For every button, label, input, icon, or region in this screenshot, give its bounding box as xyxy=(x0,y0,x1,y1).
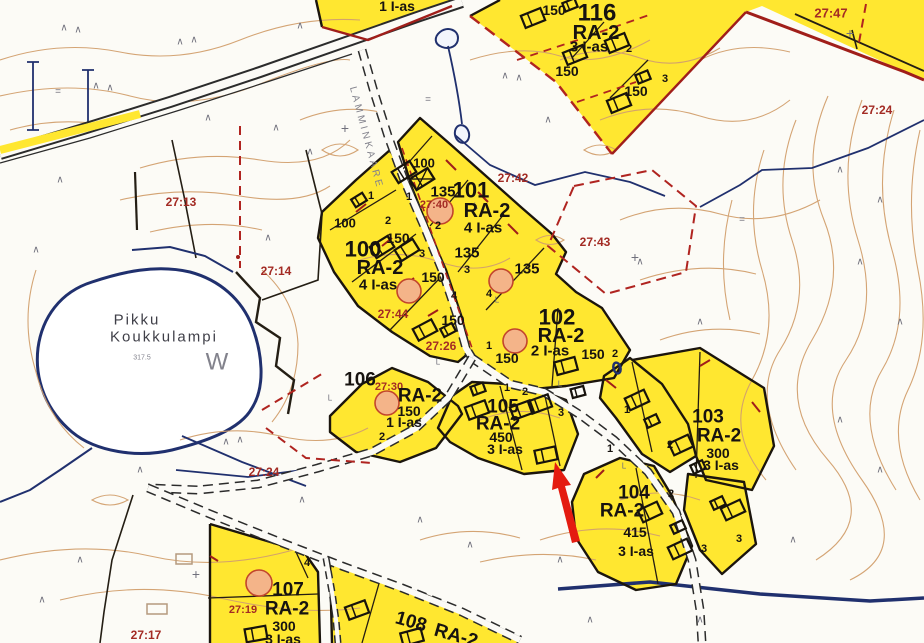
tree-icon: ∧ xyxy=(876,195,883,206)
lake-name-line1: Pikku xyxy=(114,312,161,329)
spot-icon: L xyxy=(495,296,500,305)
area-label: 150 xyxy=(386,230,410,246)
parcel-dwellings: 1 I-as xyxy=(379,0,415,14)
parcel-101-dwellings: 4 I-as xyxy=(464,220,502,237)
parcel-105-dwellings: 3 I-as xyxy=(487,441,523,457)
marsh-icon: = xyxy=(55,87,61,98)
tree-icon: ∧ xyxy=(856,257,863,268)
cadastral-ref: 27:24 xyxy=(249,465,280,479)
parcel-103-dwellings: 3 I-as xyxy=(703,457,739,473)
tree-icon: ∧ xyxy=(515,73,522,84)
marsh-icon: = xyxy=(739,215,745,226)
lot-number: 3 xyxy=(558,407,564,419)
spot-icon: L xyxy=(328,394,333,403)
cadastral-ref: 27:17 xyxy=(131,628,162,642)
building-circle-icon xyxy=(397,279,421,303)
cross-icon: + xyxy=(846,25,854,41)
parcel-104-dwellings: 3 I-as xyxy=(618,543,654,559)
tree-icon: ∧ xyxy=(92,81,99,92)
area-label: 150 xyxy=(555,63,579,79)
area-label: 150 xyxy=(542,2,566,18)
tree-icon: ∧ xyxy=(586,615,593,626)
parcel-101-number: 101 xyxy=(453,178,490,203)
tree-icon: ∧ xyxy=(789,535,796,546)
spot-icon: L xyxy=(436,358,441,367)
zoning-map: ∧∧∧∧∧∧∧∧∧∧∧∧∧∧∧∧∧∧∧∧∧∧∧∧∧∧∧∧∧∧∧∧∧∧∧∧++++… xyxy=(0,0,924,643)
cadastral-ref: 27:47 xyxy=(814,6,847,21)
tree-icon: ∧ xyxy=(298,495,305,506)
tree-icon: ∧ xyxy=(106,83,113,94)
lot-number: 4 xyxy=(451,290,458,302)
parcel-100-number: 100 xyxy=(334,216,356,231)
tree-icon: ∧ xyxy=(222,437,229,448)
tree-icon: ∧ xyxy=(836,415,843,426)
cadastral-ref: 27:14 xyxy=(261,264,292,278)
parcel-100-dwellings: 4 I-as xyxy=(359,277,397,294)
tree-icon: ∧ xyxy=(306,147,313,158)
parcel-106-number: 106 xyxy=(344,370,376,391)
cadastral-ref: 27:40 xyxy=(420,199,448,211)
parcel-107-dwellings: 3 I-as xyxy=(265,631,301,643)
parcel-106-dwellings: 1 I-as xyxy=(386,414,422,430)
parcel-103-zoning: RA-2 xyxy=(697,426,741,447)
lot-number: 2 xyxy=(522,386,528,398)
tree-icon: ∧ xyxy=(544,115,551,126)
spot-icon: L xyxy=(622,462,627,471)
old-buildings xyxy=(147,554,192,614)
tree-icon: ∧ xyxy=(296,21,303,32)
spot-icon: L xyxy=(558,380,563,389)
tree-icon: ∧ xyxy=(876,465,883,476)
old-building-icon xyxy=(147,604,167,614)
lot-number: 1 xyxy=(368,190,374,202)
lot-number: 4 xyxy=(486,288,493,300)
lake-name-line2: Koukkulampi xyxy=(110,329,218,346)
lot-number: 4 xyxy=(304,557,311,569)
lot-number: 1 xyxy=(624,404,630,416)
cross-icon: + xyxy=(341,120,349,136)
fence xyxy=(27,62,39,130)
old-building-icon xyxy=(176,554,192,564)
tree-icon: ∧ xyxy=(76,555,83,566)
area-label: 150 xyxy=(441,312,465,328)
lot-number: 3 xyxy=(464,264,470,276)
tree-icon: ∧ xyxy=(501,71,508,82)
main-road-line xyxy=(0,54,352,163)
cadastral-ref: 27:44 xyxy=(378,307,409,321)
cadastral-ref: 27:26 xyxy=(426,339,457,353)
tree-icon: ∧ xyxy=(74,25,81,36)
lot-number: 1 xyxy=(607,443,613,455)
area-label: 415 xyxy=(623,524,647,540)
area-label: 135 xyxy=(514,261,539,278)
tree-icon: ∧ xyxy=(60,23,67,34)
lot-number: 3 xyxy=(736,533,742,545)
building-icon xyxy=(571,386,586,398)
parcel-107-zoning: RA-2 xyxy=(265,599,309,620)
tree-icon: ∧ xyxy=(696,615,703,626)
marsh-icon: = xyxy=(425,95,431,106)
map-canvas: ∧∧∧∧∧∧∧∧∧∧∧∧∧∧∧∧∧∧∧∧∧∧∧∧∧∧∧∧∧∧∧∧∧∧∧∧++++… xyxy=(0,0,924,643)
tree-icon: ∧ xyxy=(272,123,279,134)
area-label: 135 xyxy=(454,245,479,262)
lot-number: 2 xyxy=(667,439,673,451)
area-label: 100 xyxy=(413,156,435,171)
building-divider xyxy=(575,388,577,397)
cross-icon: + xyxy=(192,566,200,582)
main-road-yellow xyxy=(0,114,140,150)
fence xyxy=(82,70,94,128)
tree-icon: ∧ xyxy=(32,245,39,256)
tree-icon: ∧ xyxy=(696,317,703,328)
lot-number: 3 xyxy=(419,248,425,260)
tree-icon: ∧ xyxy=(190,35,197,46)
tree-icon: ∧ xyxy=(416,515,423,526)
tree-icon: ∧ xyxy=(896,317,903,328)
building-circle-icon xyxy=(489,269,513,293)
tree-icon: ∧ xyxy=(556,555,563,566)
lot-number: 3 xyxy=(662,73,668,85)
tree-icon: ∧ xyxy=(56,175,63,186)
parcel-116-dwellings: 3 I-as xyxy=(570,39,608,56)
cadastral-ref: 27:43 xyxy=(580,235,611,249)
lot-number: 2 xyxy=(612,348,618,360)
area-label: 150 xyxy=(421,269,445,285)
tree-icon: ∧ xyxy=(204,113,211,124)
tree-icon: ∧ xyxy=(176,37,183,48)
tree-icon: ∧ xyxy=(136,465,143,476)
lot-number: 3 xyxy=(701,543,707,555)
area-label: 150 xyxy=(495,350,519,366)
lot-number: 2 xyxy=(385,215,391,227)
cadastral-ref: 27:19 xyxy=(229,604,257,616)
area-label: 135 xyxy=(430,184,455,201)
parcel-103-number: 103 xyxy=(692,407,724,428)
parcel-102-dwellings: 2 I-as xyxy=(531,343,569,360)
lake-elevation: 317.5 xyxy=(133,355,151,362)
lot-number: 2 xyxy=(435,220,441,232)
parcel-107-number: 107 xyxy=(272,580,304,601)
survey-dot xyxy=(236,255,240,259)
tree-icon: ∧ xyxy=(466,540,473,551)
lot-number: 1 xyxy=(486,340,492,352)
tree-icon: ∧ xyxy=(836,165,843,176)
cadastral-ref: 27:42 xyxy=(498,171,529,185)
building-circle-icon xyxy=(246,570,272,596)
area-label: 150 xyxy=(624,83,648,99)
lot-number: 2 xyxy=(626,43,632,55)
pond xyxy=(436,29,458,48)
tree-icon: ∧ xyxy=(38,595,45,606)
lot-number: 2 xyxy=(668,488,674,500)
building-outline xyxy=(571,386,586,398)
lot-number: 1 xyxy=(406,191,412,203)
tree-icon: ∧ xyxy=(236,435,243,446)
cadastral-ref: 27:24 xyxy=(862,103,893,117)
area-label: 150 xyxy=(581,346,605,362)
cross-icon: + xyxy=(631,249,639,265)
parcel-104-zoning: RA-2 xyxy=(600,501,644,522)
lot-number: 2 xyxy=(379,431,385,443)
tree-icon: ∧ xyxy=(264,233,271,244)
lake-letter: W xyxy=(206,349,229,376)
cadastral-ref: 27:13 xyxy=(166,195,197,209)
building-circle-icon xyxy=(375,391,399,415)
lot-number: 1 xyxy=(504,382,510,394)
